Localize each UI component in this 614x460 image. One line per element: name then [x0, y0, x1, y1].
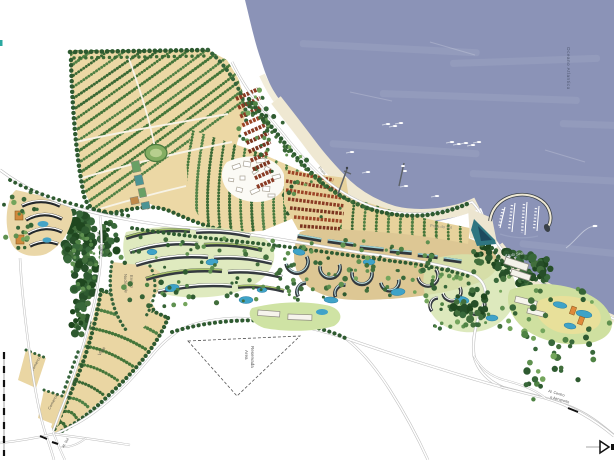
svg-text:Oceano Atlantico: Oceano Atlantico [566, 47, 571, 90]
svg-text:Area: Area [244, 350, 249, 360]
svg-text:Reservada: Reservada [250, 346, 255, 368]
